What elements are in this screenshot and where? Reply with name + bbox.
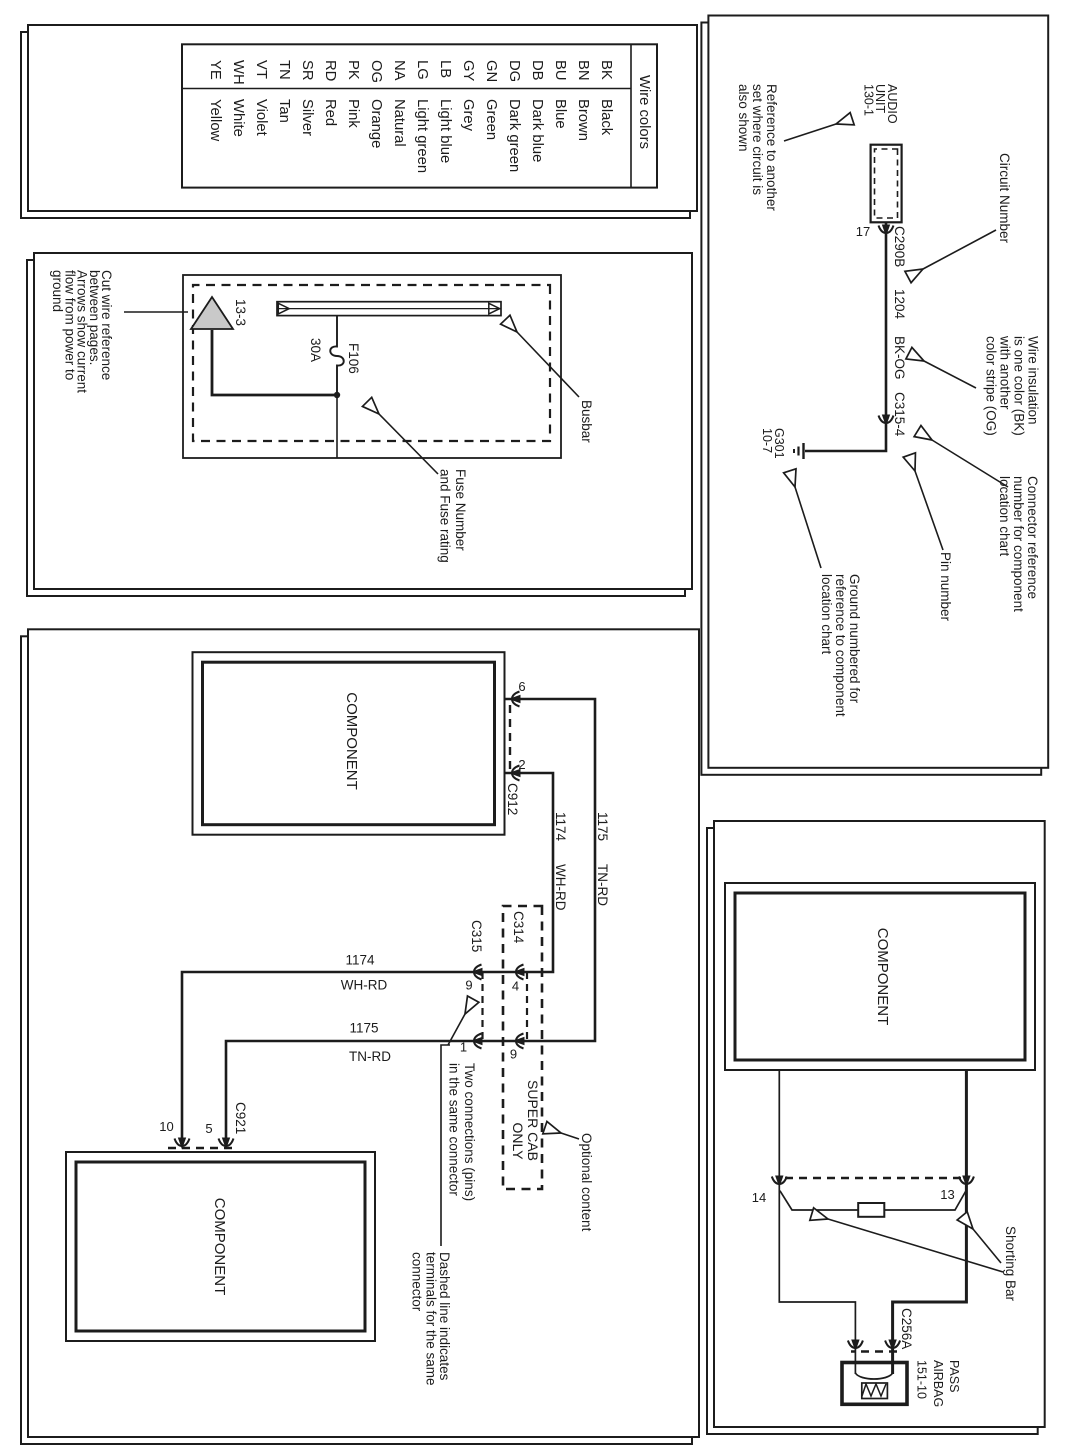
svg-text:C315: C315 <box>469 920 484 952</box>
svg-text:Connector reference: Connector reference <box>1025 476 1040 599</box>
svg-text:with another: with another <box>998 335 1013 410</box>
svg-text:Dark blue: Dark blue <box>529 99 545 162</box>
svg-text:1175: 1175 <box>349 1021 378 1036</box>
svg-text:also shown: also shown <box>736 84 751 152</box>
svg-text:Busbar: Busbar <box>579 400 594 443</box>
svg-text:LG: LG <box>414 60 430 80</box>
svg-text:C315-4: C315-4 <box>892 392 907 437</box>
svg-text:WH: WH <box>230 60 246 85</box>
svg-text:Blue: Blue <box>552 99 568 129</box>
svg-text:9: 9 <box>510 1047 517 1062</box>
svg-text:151-10: 151-10 <box>915 1360 929 1399</box>
svg-text:Silver: Silver <box>299 99 315 136</box>
svg-text:WH-RD: WH-RD <box>553 864 568 911</box>
svg-text:ground: ground <box>50 270 65 312</box>
svg-text:COMPONENT: COMPONENT <box>343 692 360 790</box>
svg-text:C314: C314 <box>511 911 526 944</box>
svg-text:NA: NA <box>391 60 407 81</box>
svg-text:Red: Red <box>322 99 338 126</box>
svg-text:30A: 30A <box>308 338 323 362</box>
svg-text:C290B: C290B <box>892 226 907 267</box>
svg-text:TN: TN <box>276 60 292 80</box>
svg-text:PK: PK <box>345 60 361 80</box>
svg-text:Shorting Bar: Shorting Bar <box>1003 1226 1018 1302</box>
svg-text:is one color (BK): is one color (BK) <box>1012 336 1027 436</box>
svg-text:Light blue: Light blue <box>437 99 453 163</box>
svg-text:2: 2 <box>518 757 525 772</box>
svg-text:Reference to another: Reference to another <box>764 84 779 211</box>
svg-text:YE: YE <box>207 60 223 80</box>
svg-text:Green: Green <box>483 99 499 140</box>
svg-text:1175: 1175 <box>595 812 610 841</box>
svg-text:AIRBAG: AIRBAG <box>931 1360 945 1407</box>
svg-text:Fuse Number: Fuse Number <box>453 469 468 551</box>
svg-text:ONLY: ONLY <box>510 1122 526 1160</box>
svg-text:4: 4 <box>512 979 519 994</box>
svg-text:OG: OG <box>368 60 384 83</box>
svg-text:Optional content: Optional content <box>579 1133 594 1232</box>
svg-text:Light green: Light green <box>414 99 430 173</box>
svg-text:number for component: number for component <box>1011 476 1026 612</box>
svg-text:BK: BK <box>598 60 614 80</box>
svg-text:C912: C912 <box>505 783 520 815</box>
svg-text:9: 9 <box>465 978 472 993</box>
svg-text:13: 13 <box>940 1187 954 1202</box>
svg-text:PASS: PASS <box>947 1360 961 1392</box>
svg-text:location chart: location chart <box>997 476 1012 557</box>
svg-text:Ground numbered for: Ground numbered for <box>847 574 862 704</box>
svg-text:in the same connector: in the same connector <box>447 1063 462 1196</box>
svg-text:F106: F106 <box>346 343 361 374</box>
svg-text:Circuit Number: Circuit Number <box>997 153 1012 244</box>
svg-text:TN-RD: TN-RD <box>595 864 610 906</box>
svg-text:1174: 1174 <box>553 812 568 842</box>
svg-text:6: 6 <box>518 679 525 694</box>
svg-text:set where circuit is: set where circuit is <box>750 84 765 195</box>
svg-text:reference to component: reference to component <box>833 574 848 717</box>
svg-text:RD: RD <box>322 60 338 81</box>
svg-text:Grey: Grey <box>460 99 476 132</box>
svg-text:Black: Black <box>598 99 614 136</box>
svg-text:LB: LB <box>437 60 453 78</box>
svg-text:TN-RD: TN-RD <box>349 1049 391 1064</box>
svg-text:BK-OG: BK-OG <box>892 336 907 380</box>
svg-text:BN: BN <box>575 60 591 81</box>
svg-text:5: 5 <box>205 1121 212 1136</box>
svg-text:Two connections (pins): Two connections (pins) <box>462 1063 477 1201</box>
svg-text:WH-RD: WH-RD <box>341 978 388 993</box>
svg-text:13-3: 13-3 <box>233 299 248 326</box>
svg-text:Dark green: Dark green <box>506 99 522 172</box>
svg-text:color stripe (OG): color stripe (OG) <box>984 336 999 436</box>
svg-text:C921: C921 <box>233 1102 248 1134</box>
svg-text:GN: GN <box>483 60 499 82</box>
svg-text:DG: DG <box>506 60 522 82</box>
svg-text:Pin number: Pin number <box>938 552 953 622</box>
svg-text:Natural: Natural <box>391 99 407 147</box>
svg-text:14: 14 <box>752 1190 766 1205</box>
svg-text:COMPONENT: COMPONENT <box>211 1198 228 1296</box>
svg-text:Tan: Tan <box>276 99 292 123</box>
svg-text:COMPONENT: COMPONENT <box>874 928 891 1026</box>
svg-text:Brown: Brown <box>575 99 591 141</box>
svg-text:and Fuse rating: and Fuse rating <box>438 469 453 563</box>
svg-text:C256A: C256A <box>899 1308 914 1349</box>
svg-text:Yellow: Yellow <box>207 99 223 142</box>
svg-text:1204: 1204 <box>892 289 907 320</box>
svg-text:1174: 1174 <box>345 953 375 968</box>
svg-text:location chart: location chart <box>819 574 834 655</box>
svg-text:Wire colors: Wire colors <box>636 75 652 149</box>
svg-text:GY: GY <box>460 60 476 82</box>
svg-text:10-7: 10-7 <box>760 428 774 453</box>
svg-text:Pink: Pink <box>345 99 361 128</box>
svg-text:SUPER CAB: SUPER CAB <box>525 1080 541 1161</box>
svg-text:White: White <box>230 99 246 137</box>
svg-text:Violet: Violet <box>253 99 269 136</box>
svg-text:10: 10 <box>159 1119 173 1134</box>
svg-text:SR: SR <box>299 60 315 81</box>
svg-text:connector: connector <box>410 1252 425 1312</box>
svg-text:DB: DB <box>529 60 545 81</box>
svg-text:VT: VT <box>253 60 269 79</box>
svg-text:130-1: 130-1 <box>862 84 876 116</box>
svg-text:BU: BU <box>552 60 568 81</box>
svg-text:1: 1 <box>460 1040 467 1055</box>
svg-text:17: 17 <box>856 224 870 239</box>
svg-text:Orange: Orange <box>368 99 384 148</box>
svg-text:Wire insulation: Wire insulation <box>1026 336 1041 425</box>
